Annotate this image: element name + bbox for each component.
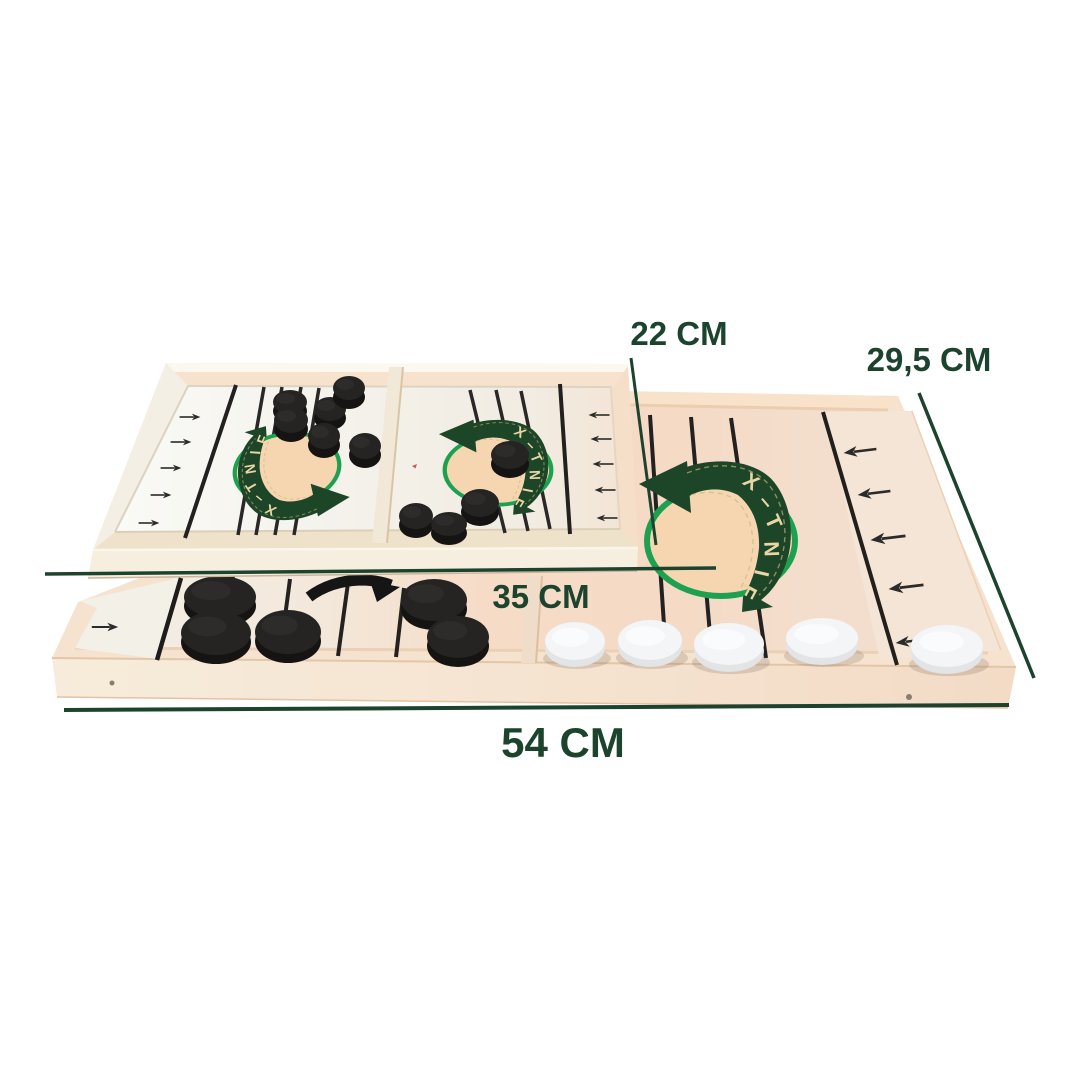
svg-text:35 CM: 35 CM bbox=[492, 578, 589, 615]
svg-text:N: N bbox=[759, 541, 783, 557]
svg-text:N: N bbox=[525, 470, 542, 480]
svg-text:54 CM: 54 CM bbox=[501, 719, 625, 766]
svg-text:22 CM: 22 CM bbox=[630, 315, 727, 352]
svg-text:29,5 CM: 29,5 CM bbox=[867, 341, 992, 378]
